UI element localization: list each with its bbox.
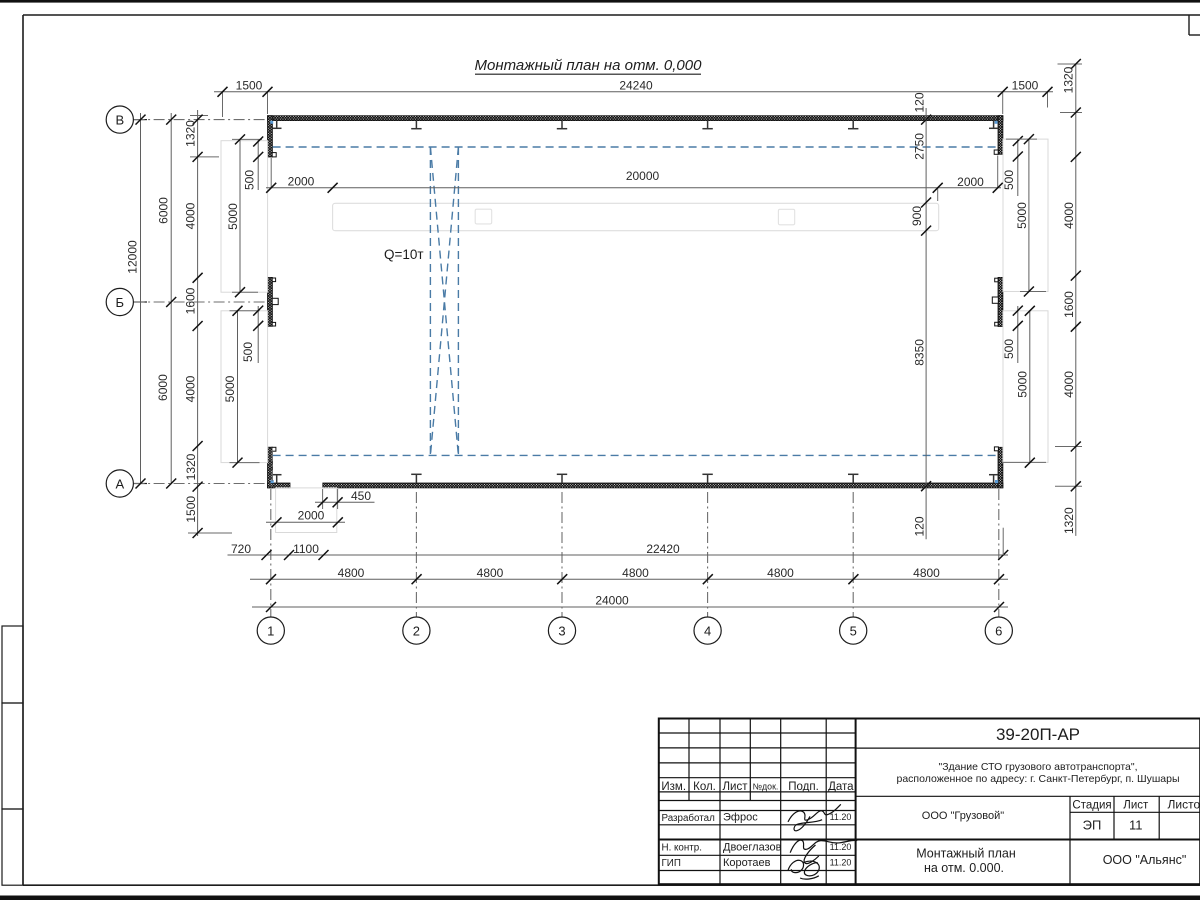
svg-text:11: 11: [1129, 818, 1143, 833]
svg-text:1600: 1600: [1062, 291, 1076, 318]
svg-text:500: 500: [1002, 170, 1016, 190]
svg-text:Стадия: Стадия: [1072, 799, 1111, 811]
svg-text:24240: 24240: [619, 79, 653, 93]
svg-text:5000: 5000: [223, 375, 237, 402]
svg-text:№док.: №док.: [753, 781, 779, 791]
svg-text:Кол.: Кол.: [693, 781, 716, 793]
svg-text:4000: 4000: [183, 202, 197, 229]
svg-text:2750: 2750: [913, 133, 927, 160]
svg-text:120: 120: [912, 92, 926, 112]
svg-text:Б: Б: [116, 295, 125, 310]
svg-text:5: 5: [850, 624, 857, 639]
svg-text:4000: 4000: [1062, 371, 1076, 398]
svg-text:Монтажный план: Монтажный план: [916, 847, 1016, 861]
svg-text:120: 120: [912, 516, 926, 536]
svg-text:720: 720: [231, 542, 251, 556]
svg-text:2000: 2000: [298, 508, 325, 522]
svg-text:22420: 22420: [646, 542, 680, 556]
svg-text:Коротаев: Коротаев: [723, 857, 771, 869]
svg-text:Эфрос: Эфрос: [723, 811, 758, 823]
svg-text:5000: 5000: [1015, 202, 1029, 229]
svg-text:1320: 1320: [183, 120, 197, 147]
svg-text:1320: 1320: [184, 453, 198, 480]
svg-text:5000: 5000: [226, 203, 240, 230]
svg-text:4800: 4800: [622, 566, 649, 580]
svg-text:ЭП: ЭП: [1083, 818, 1102, 833]
svg-text:Двоеглазов: Двоеглазов: [723, 842, 782, 854]
svg-text:1320: 1320: [1062, 507, 1076, 534]
svg-text:500: 500: [1002, 339, 1016, 359]
svg-text:4800: 4800: [338, 566, 365, 580]
svg-text:4: 4: [704, 624, 711, 639]
svg-text:1500: 1500: [184, 496, 198, 523]
svg-text:500: 500: [243, 170, 257, 190]
svg-text:Изм.: Изм.: [661, 781, 686, 793]
svg-text:Н. контр.: Н. контр.: [662, 843, 702, 854]
svg-text:5000: 5000: [1016, 371, 1030, 398]
svg-text:Лист: Лист: [1123, 799, 1149, 811]
svg-text:Монтажный план на отм. 0,000: Монтажный план на отм. 0,000: [475, 57, 703, 74]
svg-text:2000: 2000: [288, 175, 315, 189]
svg-text:11.20: 11.20: [830, 842, 852, 852]
svg-text:6000: 6000: [156, 374, 170, 401]
svg-text:900: 900: [910, 206, 924, 226]
svg-text:на отм. 0.000.: на отм. 0.000.: [924, 861, 1004, 875]
svg-text:24000: 24000: [595, 594, 629, 608]
svg-text:"Здание СТО грузового автотран: "Здание СТО грузового автотранспорта",: [938, 761, 1137, 773]
svg-text:расположенное по адресу: г. Са: расположенное по адресу: г. Санкт-Петерб…: [897, 773, 1180, 785]
svg-text:6: 6: [995, 624, 1002, 639]
svg-text:1100: 1100: [293, 542, 319, 556]
svg-text:3: 3: [558, 624, 565, 639]
svg-text:39-20П-АР: 39-20П-АР: [996, 725, 1080, 744]
svg-text:Подп.: Подп.: [788, 781, 819, 793]
svg-text:4000: 4000: [1062, 202, 1076, 229]
svg-text:Листов: Листов: [1168, 797, 1200, 811]
svg-text:11.20: 11.20: [830, 857, 852, 867]
svg-text:А: А: [115, 477, 124, 492]
svg-text:1320: 1320: [1062, 66, 1076, 93]
svg-text:4800: 4800: [913, 566, 940, 580]
svg-text:4800: 4800: [477, 566, 504, 580]
svg-text:6000: 6000: [156, 197, 170, 224]
svg-text:8350: 8350: [913, 339, 927, 366]
svg-text:1: 1: [267, 624, 274, 639]
svg-text:2: 2: [413, 624, 420, 639]
svg-text:ГИП: ГИП: [662, 858, 681, 869]
svg-text:4000: 4000: [183, 375, 197, 402]
svg-text:1600: 1600: [183, 287, 197, 314]
svg-text:В: В: [115, 113, 124, 128]
svg-text:Разработал: Разработал: [662, 813, 716, 824]
svg-text:12000: 12000: [126, 240, 140, 274]
svg-text:Дата: Дата: [828, 781, 854, 793]
svg-text:500: 500: [241, 342, 255, 362]
svg-text:ООО "Альянс": ООО "Альянс": [1103, 853, 1187, 867]
svg-text:2000: 2000: [957, 175, 984, 189]
svg-text:1500: 1500: [236, 79, 263, 93]
svg-text:Q=10т: Q=10т: [384, 247, 424, 262]
svg-text:ООО "Грузовой": ООО "Грузовой": [922, 810, 1004, 822]
svg-text:11.20: 11.20: [830, 812, 852, 822]
svg-text:Лист: Лист: [723, 781, 749, 793]
svg-text:20000: 20000: [626, 169, 660, 183]
svg-text:1500: 1500: [1012, 79, 1039, 93]
svg-text:450: 450: [351, 489, 371, 503]
svg-text:4800: 4800: [767, 566, 794, 580]
